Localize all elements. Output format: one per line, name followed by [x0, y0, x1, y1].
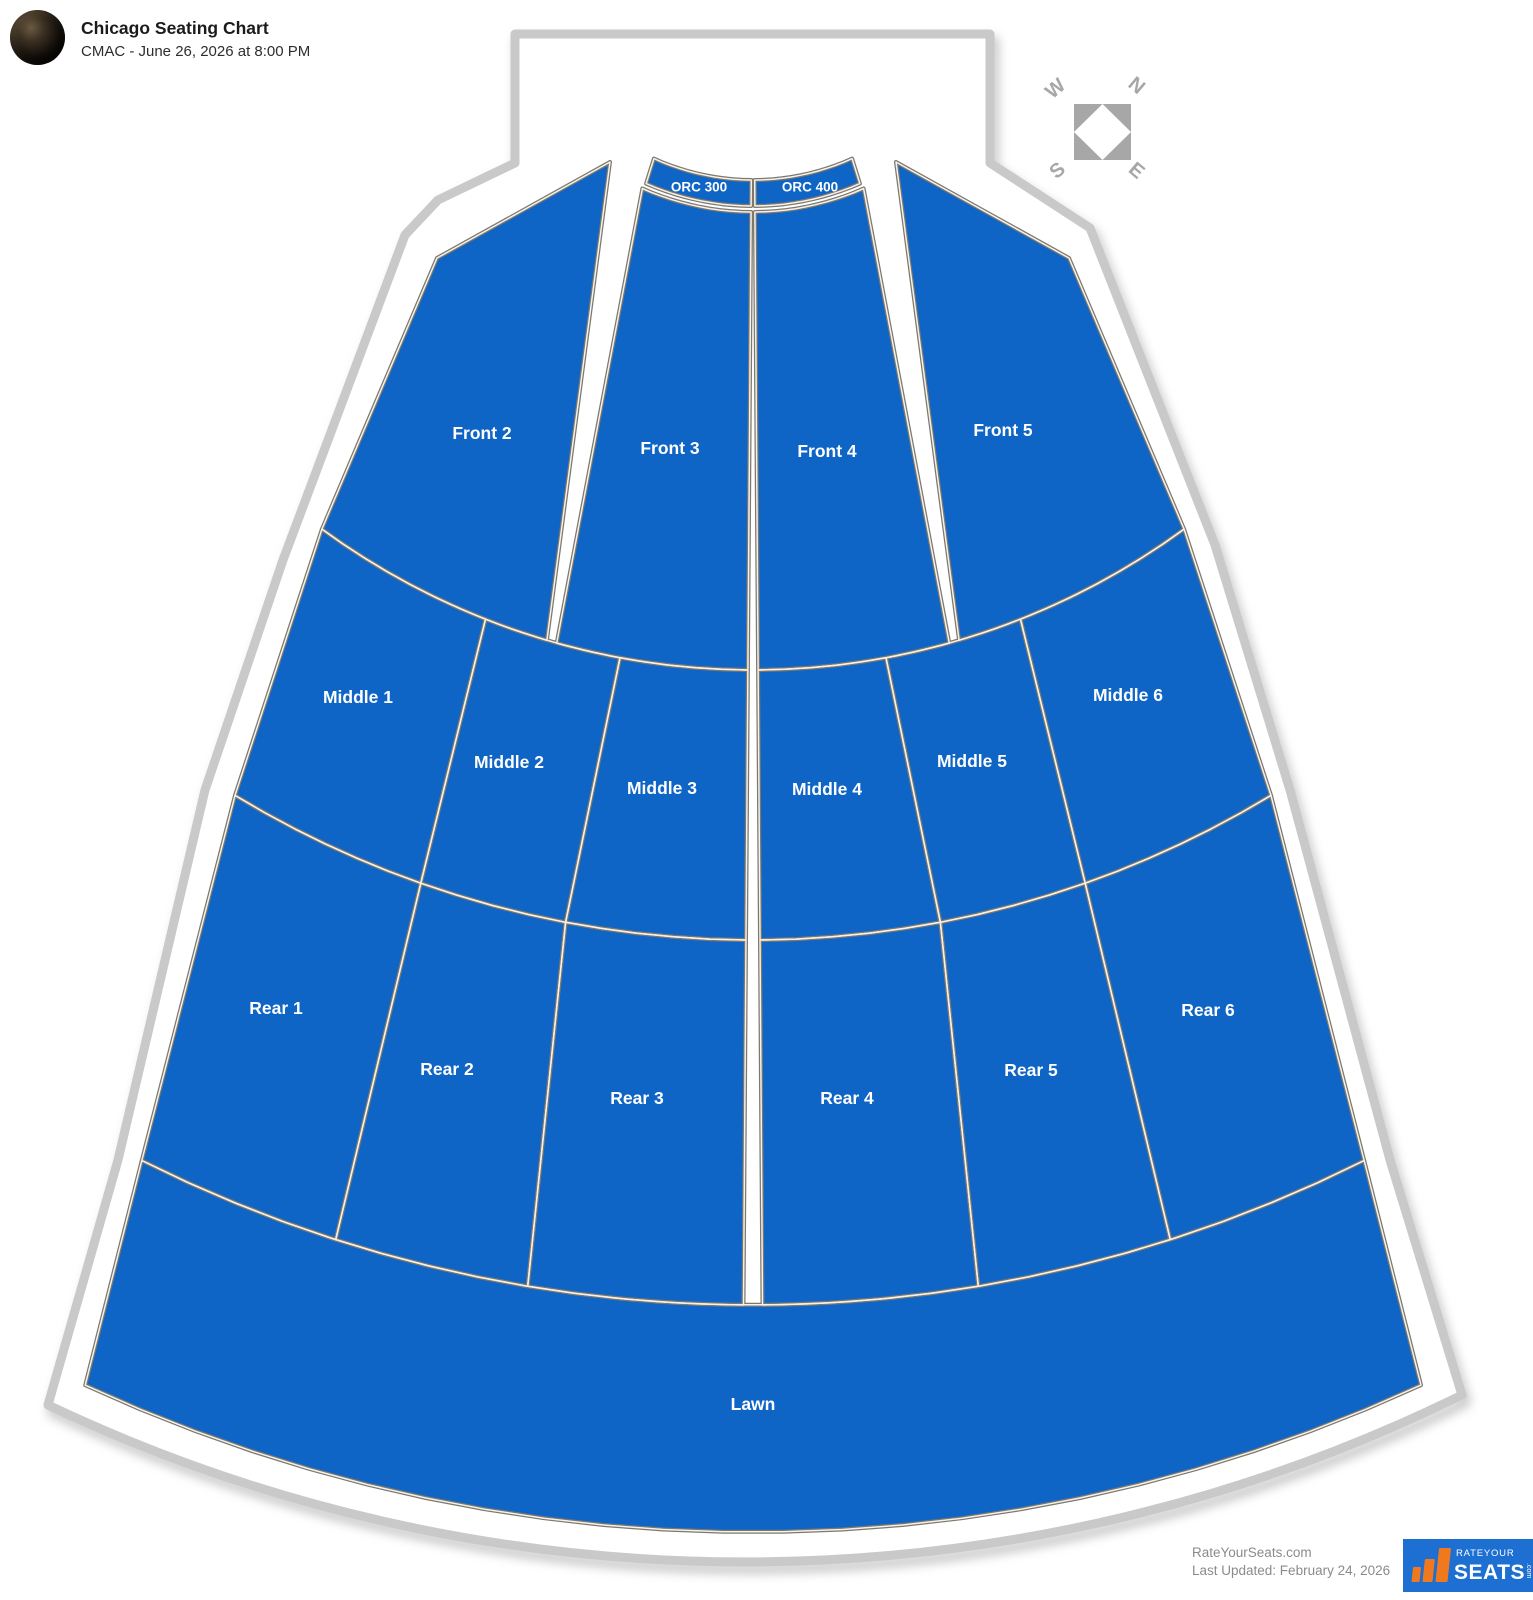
logo-text-dotcom: .com	[1525, 1563, 1532, 1578]
section-label-front-3: Front 3	[640, 438, 700, 458]
compass-letter-n: N	[1124, 73, 1149, 99]
compass-letter-w: W	[1041, 74, 1070, 103]
seat-map: ORC 300ORC 400Front 2Front 3Front 4Front…	[0, 0, 1533, 1600]
section-label-orc-400: ORC 400	[782, 180, 838, 195]
section-label-middle-3: Middle 3	[627, 778, 697, 798]
section-label-front-5: Front 5	[973, 420, 1033, 440]
section-label-lawn: Lawn	[731, 1394, 776, 1414]
section-label-middle-5: Middle 5	[937, 751, 1007, 771]
section-label-front-2: Front 2	[452, 423, 512, 443]
section-label-rear-4: Rear 4	[820, 1088, 874, 1108]
section-label-middle-6: Middle 6	[1093, 685, 1163, 705]
footer-credits: RateYourSeats.com Last Updated: February…	[1192, 1544, 1390, 1580]
section-label-middle-2: Middle 2	[474, 752, 544, 772]
section-label-middle-1: Middle 1	[323, 687, 393, 707]
section-label-rear-5: Rear 5	[1004, 1060, 1058, 1080]
logo-text-main: SEATS	[1454, 1561, 1525, 1584]
compass-icon	[1074, 104, 1131, 160]
section-label-rear-6: Rear 6	[1181, 1000, 1235, 1020]
section-label-orc-300: ORC 300	[671, 180, 727, 195]
section-label-rear-1: Rear 1	[249, 998, 303, 1018]
logo-text-top: RATEYOUR	[1456, 1548, 1514, 1559]
section-label-rear-2: Rear 2	[420, 1059, 474, 1079]
footer-updated: Last Updated: February 24, 2026	[1192, 1562, 1390, 1580]
rateyourseats-logo[interactable]: RATEYOUR SEATS .com	[1403, 1539, 1533, 1592]
seating-chart-page: Chicago Seating Chart CMAC - June 26, 20…	[0, 0, 1533, 1600]
section-label-middle-4: Middle 4	[792, 779, 862, 799]
compass: W N S E	[1041, 73, 1149, 184]
compass-letter-s: S	[1045, 158, 1069, 183]
footer-site: RateYourSeats.com	[1192, 1544, 1390, 1562]
section-label-rear-3: Rear 3	[610, 1088, 664, 1108]
compass-letter-e: E	[1124, 158, 1148, 183]
section-label-front-4: Front 4	[797, 441, 857, 461]
